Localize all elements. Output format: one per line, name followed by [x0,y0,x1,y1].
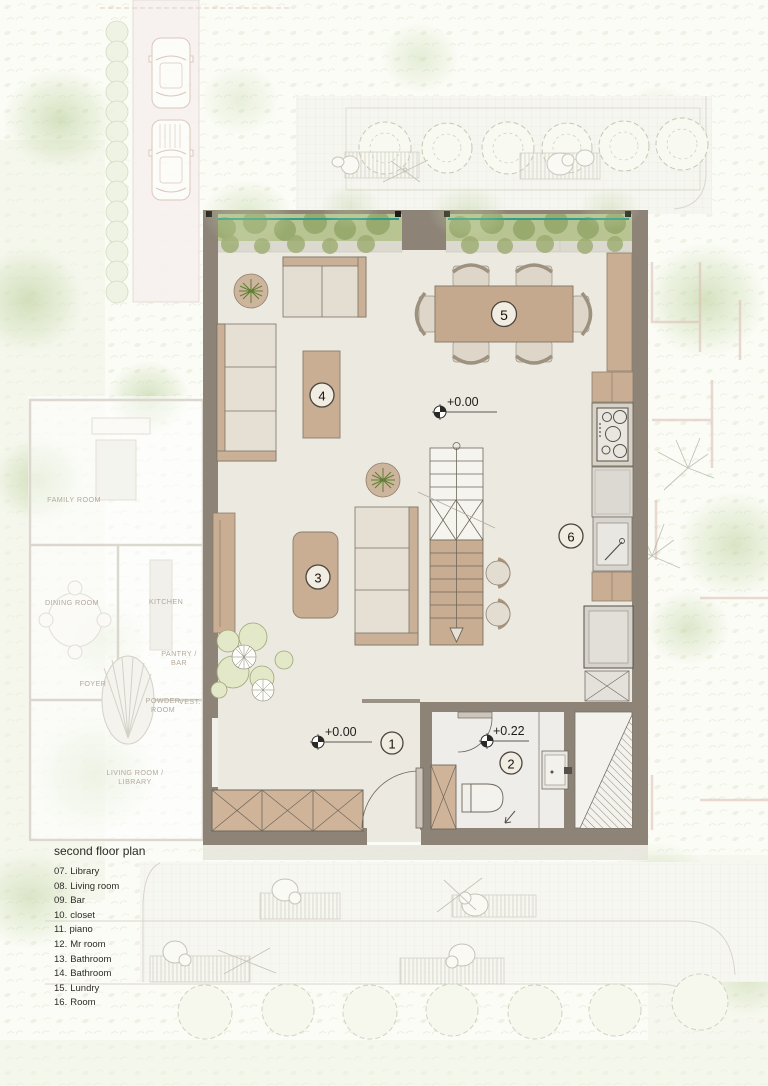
legend-item-label: piano [70,924,93,935]
loveseat [283,257,366,317]
car [149,38,193,108]
legend-item: 11.piano [54,923,145,938]
sink-cabinet [593,517,632,571]
legend-item: 15.Lundry [54,982,145,997]
legend-item-label: Mr room [70,939,105,950]
legend-item-label: Room [70,997,95,1008]
legend-item: 10.closet [54,909,145,924]
context-room-label: FOYER [63,679,123,688]
context-room-label: FAMILY ROOM [39,495,109,504]
main-floor-plan [203,210,648,860]
legend-item: 12.Mr room [54,938,145,953]
legend-item-number: 14. [54,968,67,979]
elevation-label-living: +0.00 [447,396,479,409]
closet [212,790,363,831]
ramp-hatch [575,712,632,828]
legend-item: 09.Bar [54,894,145,909]
legend-item-label: Lundry [70,983,99,994]
room-number-2: 2 [507,758,514,771]
sofa-center [355,507,418,645]
legend-item-label: closet [70,910,95,921]
room-number-5: 5 [500,308,508,322]
potted-plant [234,274,268,308]
legend-item: 14.Bathroom [54,967,145,982]
legend-item-label: Bathroom [70,954,111,965]
cabinet-x [585,671,629,701]
room-number-3: 3 [314,572,321,585]
elevation-label-bathroom: +0.22 [493,725,525,738]
entry-cabinet-x [431,765,456,829]
legend-item-label: Library [70,866,99,877]
toilet [462,784,503,812]
legend-item-number: 16. [54,997,67,1008]
context-room-label: VEST. [170,697,210,706]
elevation-label-entry: +0.00 [325,726,357,739]
legend: second floor plan 07.Library 08.Living r… [54,844,145,1011]
legend-item-label: Living room [70,881,119,892]
legend-item-number: 11. [54,924,67,935]
legend-item-number: 10. [54,910,67,921]
context-room-label: DINING ROOM [37,598,107,607]
legend-item: 08.Living room [54,880,145,895]
legend-title: second floor plan [54,844,145,858]
sink [542,751,572,789]
context-room-label: KITCHEN [136,597,196,606]
legend-item: 16.Room [54,996,145,1011]
console [213,513,235,633]
car [149,120,193,200]
sofa-left [217,324,276,461]
stove [592,403,633,466]
legend-item: 13.Bathroom [54,953,145,968]
room-number-6: 6 [567,531,574,544]
room-number-1: 1 [388,738,395,751]
legend-item-number: 07. [54,866,67,877]
context-room-label: PANTRY / BAR [149,649,209,667]
site-floor-plan-sheet: FAMILY ROOM DINING ROOM KITCHEN PANTRY /… [0,0,768,1086]
legend-item: 07.Library [54,865,145,880]
legend-item-number: 15. [54,983,67,994]
legend-item-label: Bar [70,895,85,906]
bench [150,956,250,982]
legend-item-label: Bathroom [70,968,111,979]
legend-item-number: 13. [54,954,67,965]
legend-item-number: 08. [54,881,67,892]
room-number-4: 4 [318,390,325,403]
potted-plant [366,463,400,497]
legend-item-number: 09. [54,895,67,906]
context-room-label: LIVING ROOM / LIBRARY [95,768,175,786]
legend-item-number: 12. [54,939,67,950]
fridge [584,606,633,668]
